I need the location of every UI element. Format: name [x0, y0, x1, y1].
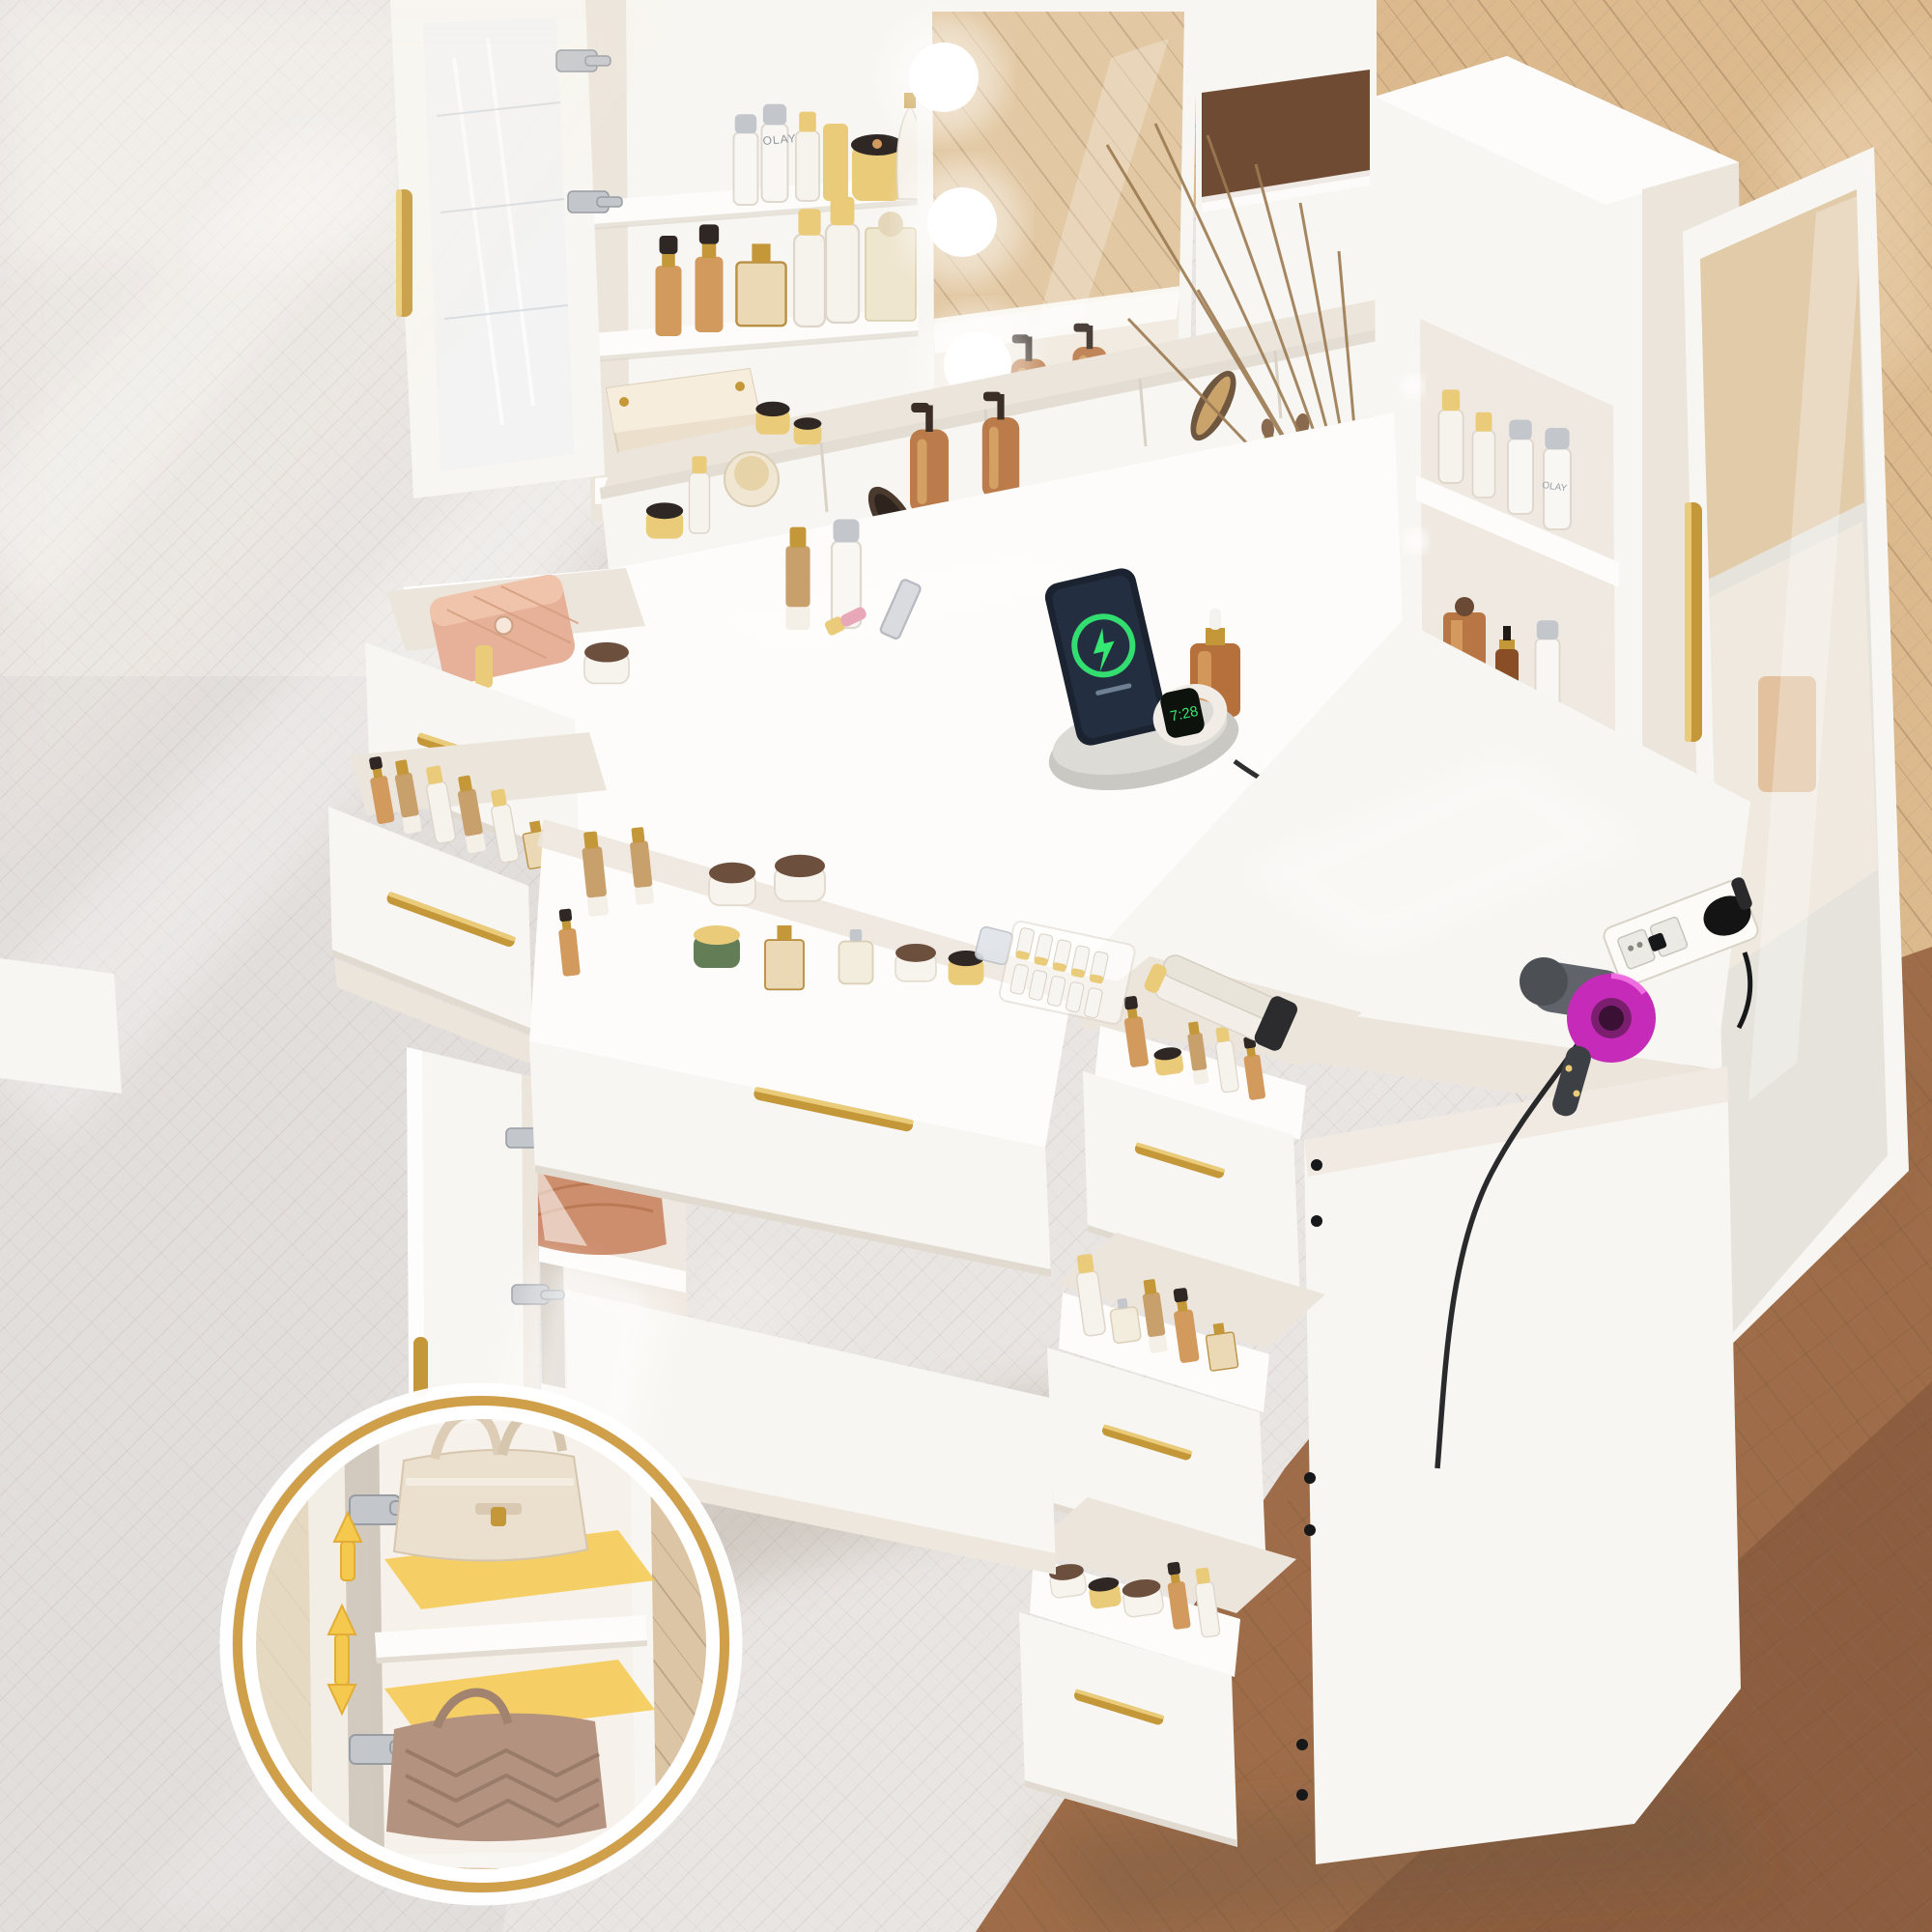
product-photo-stage: OLAY	[0, 0, 1932, 1932]
green-jar	[694, 925, 740, 968]
cosmetic-item	[475, 645, 493, 688]
cosmetic-item	[1508, 420, 1533, 515]
gold-jar-black-lid	[851, 134, 903, 201]
cosmetic-item	[794, 417, 822, 444]
vanity-scene: OLAY	[0, 0, 1932, 1932]
cosmetic-item	[734, 114, 758, 205]
cosmetic-item	[895, 944, 936, 981]
cosmetic-item	[826, 197, 859, 323]
cosmetic-item	[690, 456, 710, 533]
cosmetic-item	[762, 104, 788, 202]
cosmetic-item	[794, 209, 825, 327]
door-gold-handle	[413, 1337, 428, 1397]
cosmetic-item	[775, 855, 825, 901]
cosmetic-item	[1544, 428, 1571, 529]
led-bulb	[927, 187, 997, 257]
cosmetic-item	[755, 402, 789, 435]
side-panel-sliver	[0, 958, 122, 1094]
cosmetic-item	[646, 502, 683, 538]
cosmetic-item	[709, 863, 755, 905]
cosmetic-item	[796, 112, 819, 201]
cosmetic-item	[823, 124, 848, 201]
detail-inset	[226, 1389, 736, 1899]
cosmetic-item	[1438, 389, 1463, 483]
led-bulb	[909, 43, 979, 112]
cosmetic-item	[1472, 412, 1494, 497]
cosmetic-item	[584, 642, 629, 684]
